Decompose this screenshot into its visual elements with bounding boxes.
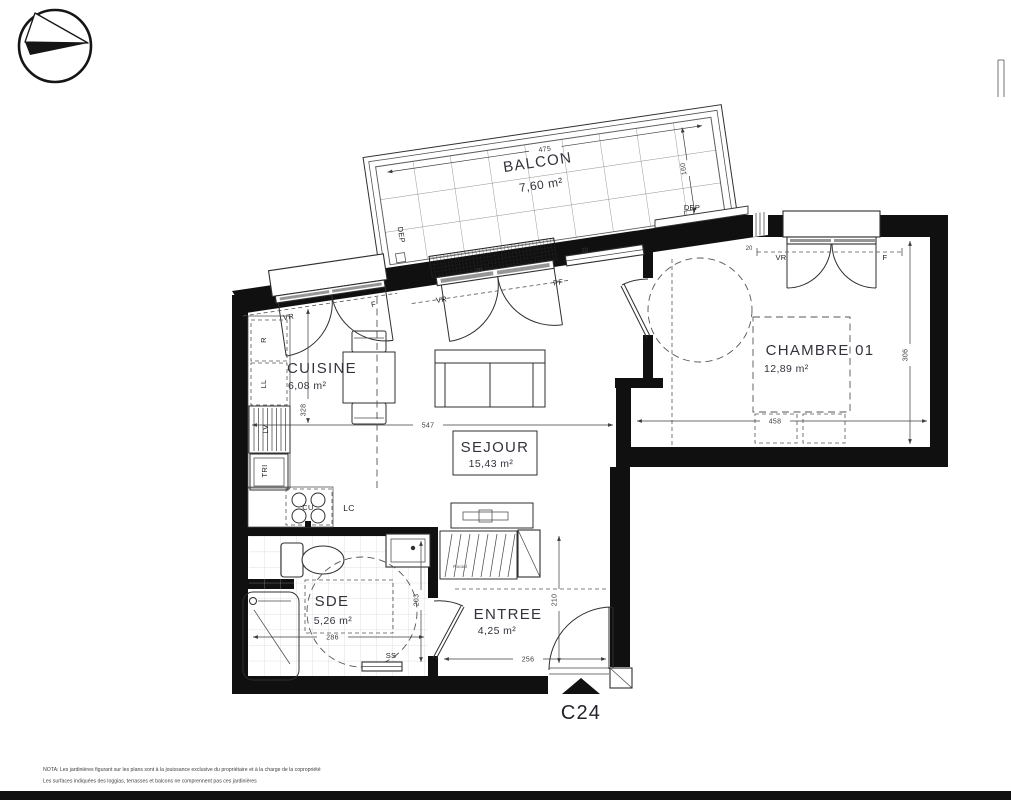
kitchen-fittings: R LL LV TRI CU LC <box>248 297 395 527</box>
corner-shaft <box>610 668 632 688</box>
dim-entry-depth: 210 <box>552 594 559 607</box>
unit-id: C24 <box>561 702 601 724</box>
label-dep-right: DEP <box>684 203 700 212</box>
label-vr-kitchen: VR <box>282 312 294 323</box>
room-area-sejour: 15,43 m² <box>469 458 514 470</box>
closet: Placard <box>440 531 517 579</box>
shutter-box <box>783 211 880 237</box>
room-label-cuisine: CUISINE <box>287 360 357 377</box>
room-label-sde: SDE <box>315 593 350 610</box>
floor-plan-page: 475 160 BALCON 7,60 m² DEP DEP <box>0 0 1011 800</box>
unit-marker: C24 <box>561 678 601 724</box>
sofa <box>435 350 545 407</box>
entrance-door <box>549 607 613 674</box>
room-area-sde: 5,26 m² <box>314 615 352 627</box>
nightstand-dashed <box>803 414 845 443</box>
label-dishwasher: LV <box>261 424 270 433</box>
washing-machine <box>251 363 287 405</box>
living-room: SEJOUR 15,43 m² <box>435 350 545 528</box>
label-vr-bedroom: VR <box>775 253 786 262</box>
label-vr-living: VR <box>435 294 447 305</box>
nota-line-1: NOTA: Les jardinières figurant sur les p… <box>43 767 321 773</box>
label-cooktop: CU <box>302 503 313 512</box>
label-closet: Placard <box>453 564 468 569</box>
dining-table <box>343 331 395 424</box>
label-pf-living: PF <box>552 277 564 287</box>
dim-entry-width: 256 <box>522 657 535 664</box>
label-lc: LC <box>343 503 354 513</box>
bedroom-door <box>621 279 650 338</box>
dim-sde-width: 286 <box>326 635 339 642</box>
toilet <box>281 543 344 577</box>
towel-radiator <box>362 662 402 671</box>
room-label-sejour: SEJOUR <box>461 439 530 456</box>
dim-sde-depth: 203 <box>414 594 421 607</box>
north-arrow-icon <box>19 10 91 82</box>
dim-wall-offset-3: 20 <box>746 246 753 252</box>
label-sorting-bin: TRI <box>260 465 269 478</box>
nota-block: NOTA: Les jardinières figurant sur les p… <box>43 767 321 785</box>
bedroom: CHAMBRE 01 12,89 m² <box>621 258 874 448</box>
chair <box>352 331 386 352</box>
room-area-entree: 4,25 m² <box>478 625 516 637</box>
floor-plan-drawing: 475 160 BALCON 7,60 m² DEP DEP <box>0 0 1011 800</box>
room-area-cuisine: 6,08 m² <box>288 380 326 392</box>
sde-door <box>433 601 464 659</box>
room-label-chambre: CHAMBRE 01 <box>766 342 875 359</box>
entrance-triangle-icon <box>562 678 600 694</box>
sorting-bin <box>250 454 288 490</box>
nota-line-2: Les surfaces indiquées des loggias, terr… <box>43 779 257 785</box>
label-towel-radiator: SS <box>386 651 397 660</box>
label-f-kitchen: F <box>370 299 376 309</box>
bottom-border-bar <box>0 791 1011 800</box>
chair <box>352 403 386 424</box>
label-washing-machine: LL <box>259 380 268 389</box>
label-fridge: R <box>259 337 268 343</box>
turning-circle <box>648 258 752 362</box>
sideboard-radiator <box>451 503 533 528</box>
room-label-entree: ENTREE <box>474 606 543 623</box>
washbasin <box>386 534 430 567</box>
dim-living-width: 547 <box>422 423 435 430</box>
technical-shaft <box>518 530 540 577</box>
dim-kitchen-depth: 328 <box>301 404 308 417</box>
neighbor-wall-line <box>998 60 1004 97</box>
label-f-bedroom: F <box>883 253 888 262</box>
dim-bedroom-width: 458 <box>769 419 782 426</box>
entry: Placard ENTREE 4,25 m² <box>440 530 632 688</box>
room-area-chambre: 12,89 m² <box>764 363 809 375</box>
cooktop <box>248 487 333 527</box>
dim-bedroom-depth: 306 <box>903 349 910 362</box>
